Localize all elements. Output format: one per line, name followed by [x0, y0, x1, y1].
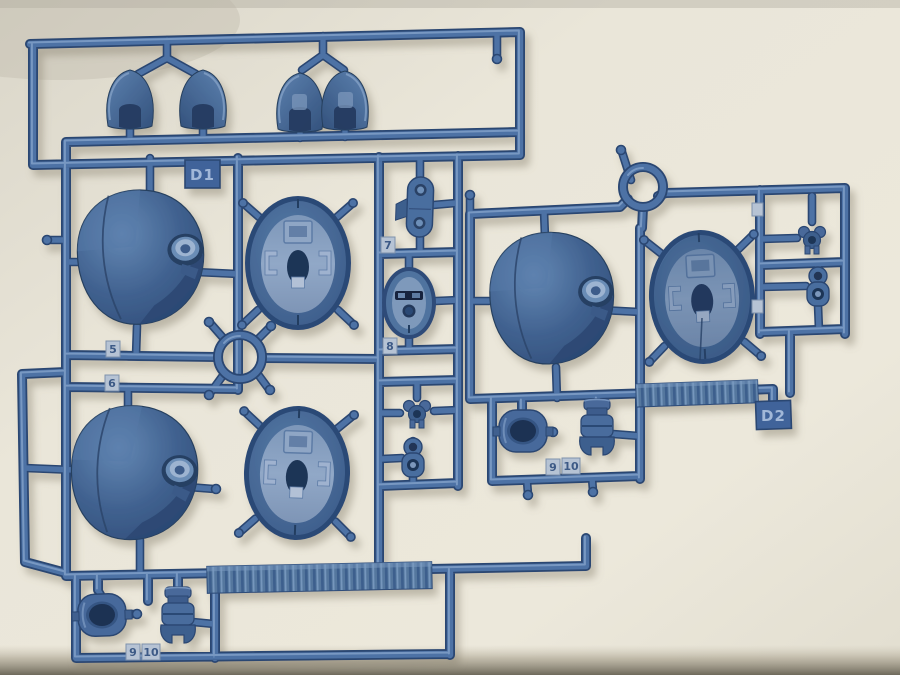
cylinder-part [161, 587, 196, 643]
part-number-tag: 10 [562, 458, 580, 474]
part-number-tag [752, 300, 763, 313]
svg-text:5: 5 [109, 343, 117, 356]
model-kit-photo: D1 5 6 7 8 9 10 [0, 0, 900, 675]
svg-text:9: 9 [549, 461, 557, 474]
molded-text-strip [636, 380, 759, 407]
part-number-tag: 7 [381, 237, 395, 253]
ring-part [493, 410, 553, 452]
gate-tab-d1: D1 [185, 160, 220, 188]
part-number-tag: 5 [106, 341, 120, 357]
svg-text:10: 10 [563, 460, 579, 473]
part-number-tag: 10 [142, 644, 160, 660]
part-number-tag: 9 [126, 644, 140, 660]
part-number-tag [752, 203, 763, 216]
part-number-tag: 9 [546, 459, 560, 475]
svg-text:8: 8 [386, 340, 394, 353]
svg-text:6: 6 [108, 377, 116, 390]
keyhole-joint-part [402, 438, 424, 477]
svg-text:7: 7 [384, 239, 392, 252]
keyhole-joint-part [807, 267, 829, 306]
svg-text:9: 9 [129, 646, 137, 659]
part-number-tag: 6 [105, 375, 119, 391]
gate-label-d2: D2 [761, 407, 786, 425]
part-number-tag: 8 [383, 338, 397, 354]
gate-tab-d2: D2 [756, 400, 792, 429]
photo-canvas: D1 5 6 7 8 9 10 [0, 0, 900, 675]
molded-text-strip [207, 562, 433, 594]
cylinder-part [580, 399, 615, 455]
visor-part [382, 267, 436, 339]
oval-shell-part [238, 196, 358, 330]
gate-label-d1: D1 [190, 166, 215, 184]
oval-shell-part [234, 404, 359, 542]
svg-text:10: 10 [143, 646, 159, 659]
